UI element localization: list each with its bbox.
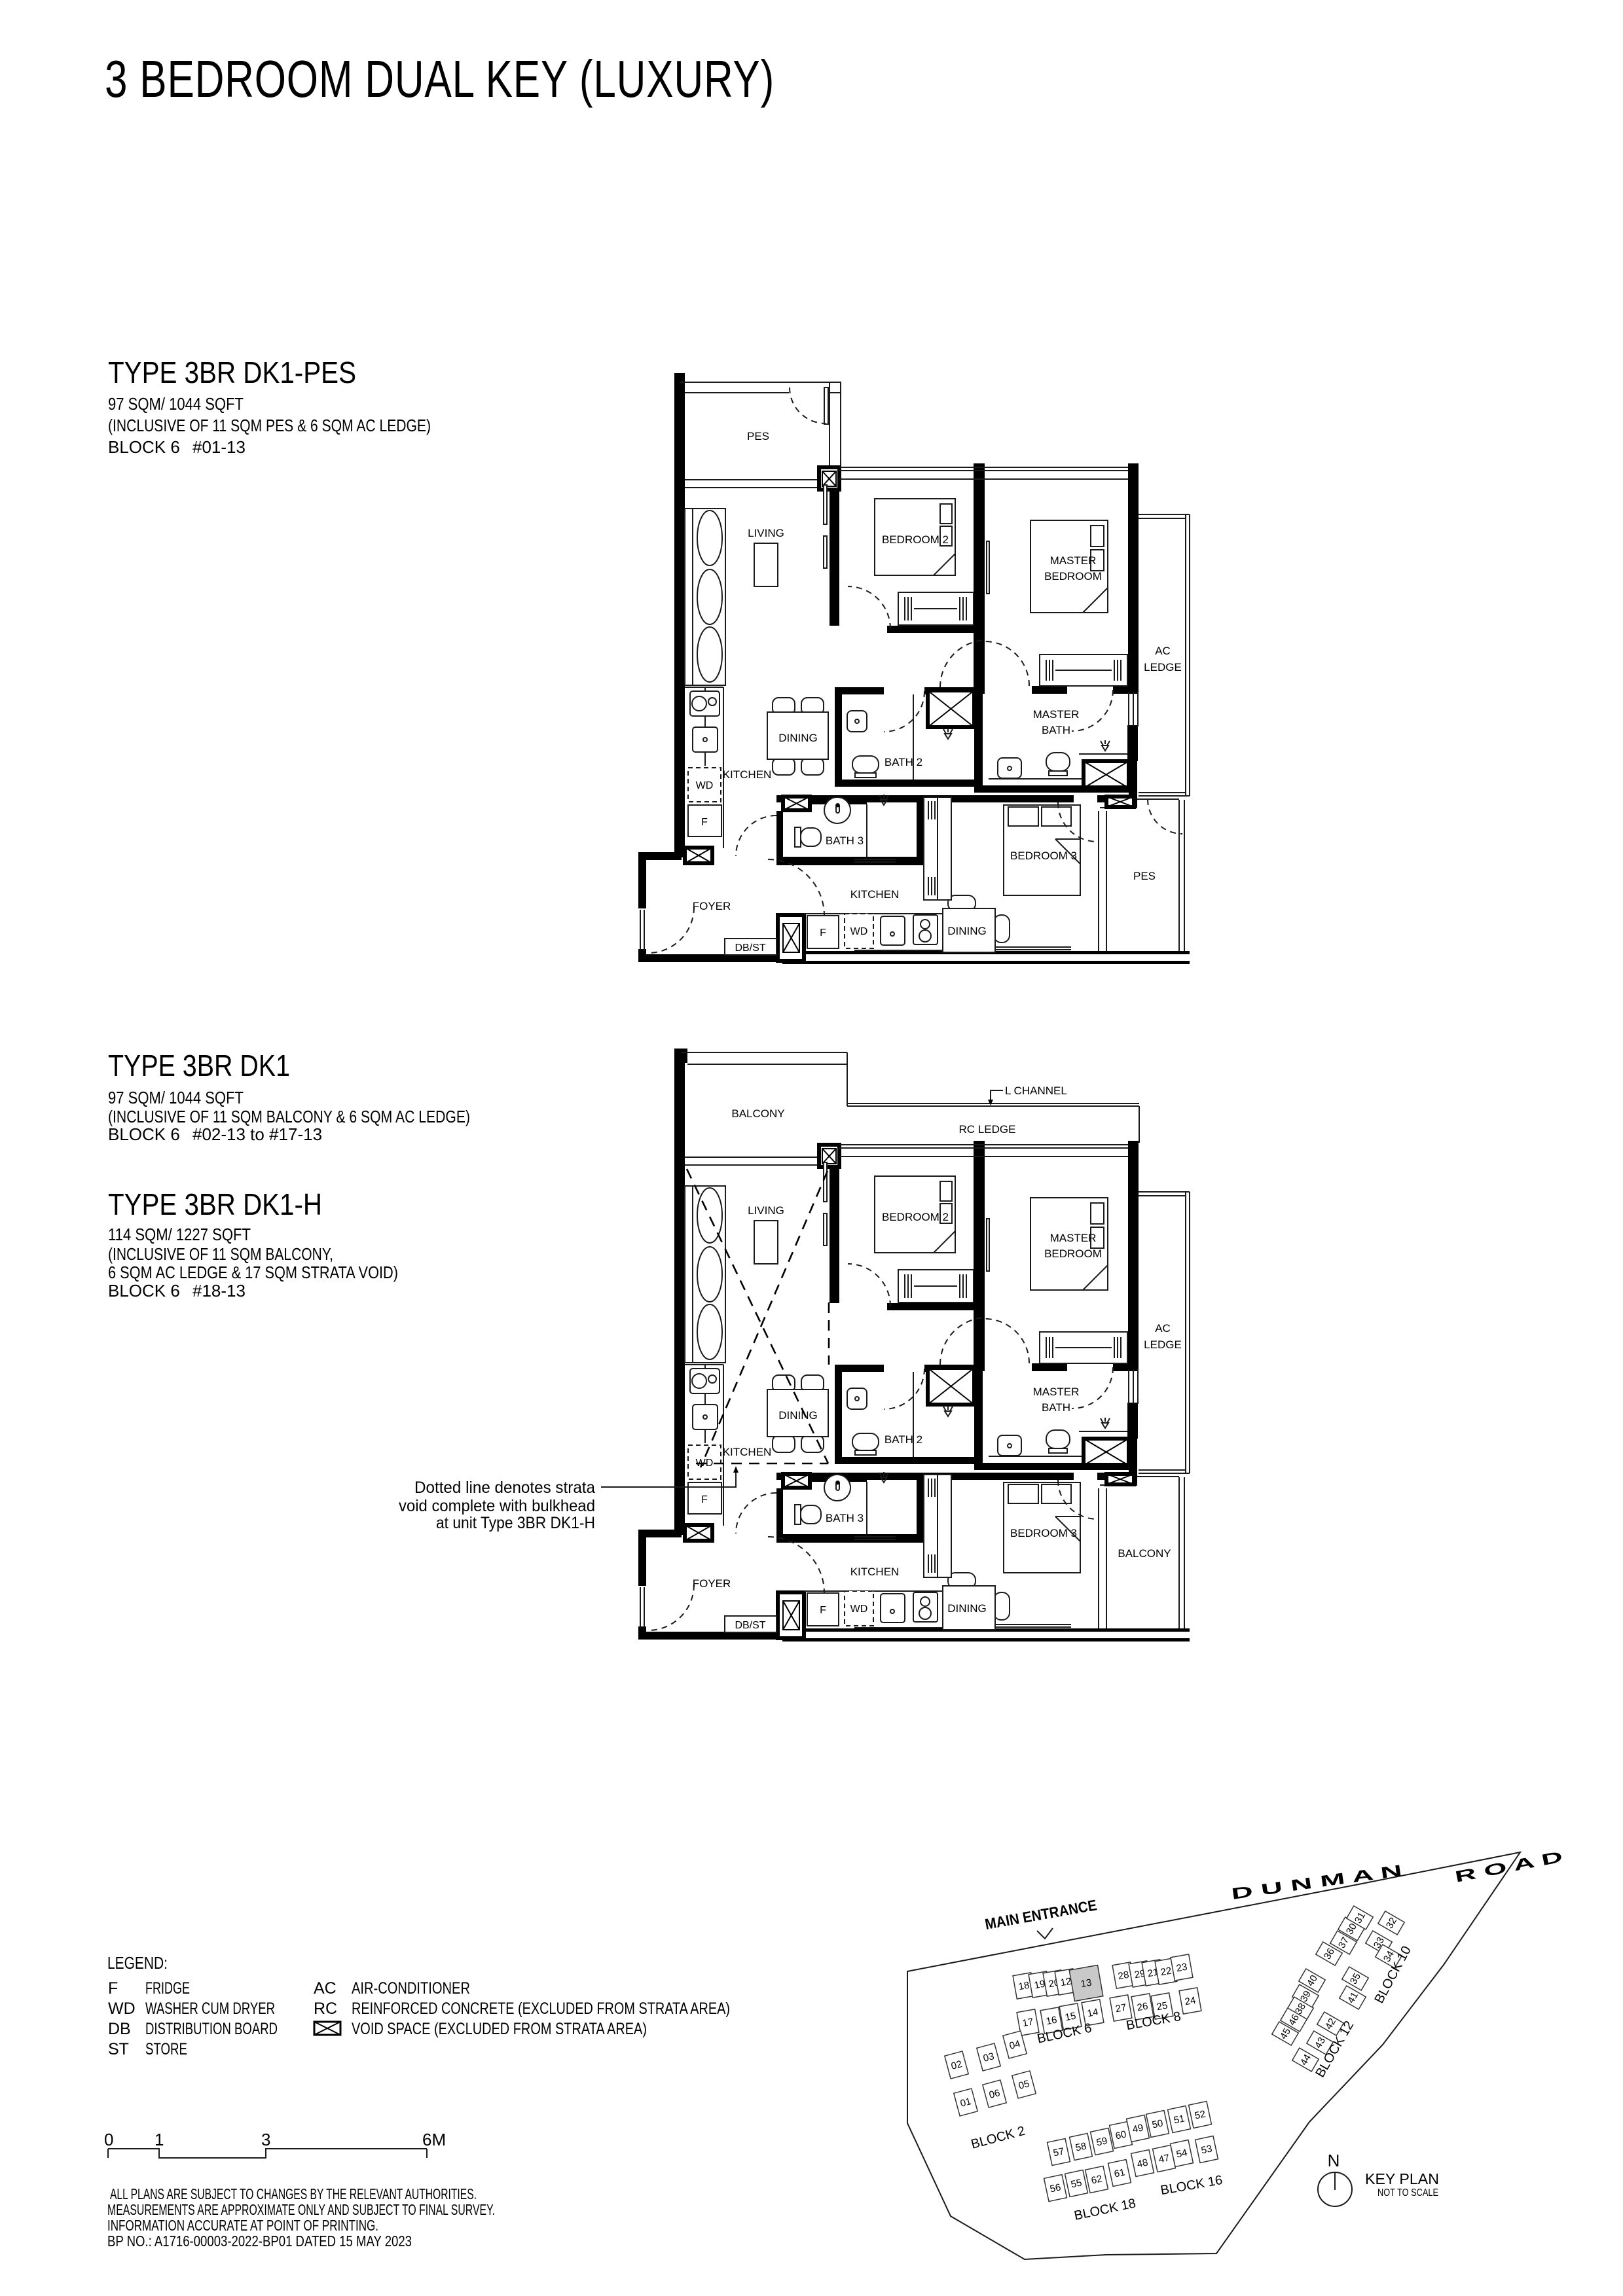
svg-text:DB: DB xyxy=(108,2020,131,2038)
svg-text:17: 17 xyxy=(1021,2017,1034,2030)
svg-text:TYPE 3BR DK1-PES: TYPE 3BR DK1-PES xyxy=(108,355,356,389)
svg-text:#18-13: #18-13 xyxy=(192,1281,246,1300)
svg-text:KEY PLAN: KEY PLAN xyxy=(1365,2170,1439,2187)
svg-text:REINFORCED CONCRETE (EXCLUDED: REINFORCED CONCRETE (EXCLUDED FROM STRAT… xyxy=(352,2000,730,2018)
svg-text:6M: 6M xyxy=(422,2130,446,2149)
svg-text:27: 27 xyxy=(1114,2002,1127,2015)
svg-text:TYPE 3BR DK1-H: TYPE 3BR DK1-H xyxy=(108,1187,322,1221)
svg-text:MAIN ENTRANCE: MAIN ENTRANCE xyxy=(983,1896,1098,1933)
svg-text:97 SQM/ 1044 SQFT: 97 SQM/ 1044 SQFT xyxy=(108,1088,244,1107)
svg-text:WD: WD xyxy=(108,2000,136,2018)
svg-text:BLOCK 18: BLOCK 18 xyxy=(1073,2196,1137,2223)
svg-text:RC LEDGE: RC LEDGE xyxy=(959,1123,1016,1136)
svg-text:48: 48 xyxy=(1136,2157,1149,2170)
svg-text:28: 28 xyxy=(1117,1969,1129,1982)
svg-text:13: 13 xyxy=(1080,1977,1092,1990)
svg-text:97 SQM/ 1044 SQFT: 97 SQM/ 1044 SQFT xyxy=(108,394,244,414)
svg-text:DISTRIBUTION BOARD: DISTRIBUTION BOARD xyxy=(145,2020,278,2038)
svg-text:NOT TO SCALE: NOT TO SCALE xyxy=(1377,2187,1438,2198)
svg-text:60: 60 xyxy=(1114,2128,1127,2142)
svg-text:ST: ST xyxy=(108,2040,129,2058)
svg-text:at unit Type 3BR DK1-H: at unit Type 3BR DK1-H xyxy=(436,1514,595,1532)
svg-text:26: 26 xyxy=(1136,2001,1148,2014)
svg-text:BLOCK 6: BLOCK 6 xyxy=(108,1281,180,1300)
svg-text:BALCONY: BALCONY xyxy=(1118,1547,1171,1560)
svg-text:3: 3 xyxy=(261,2130,270,2149)
svg-text:57: 57 xyxy=(1052,2145,1065,2159)
svg-text:TYPE 3BR DK1: TYPE 3BR DK1 xyxy=(108,1049,290,1083)
svg-text:#02-13 to #17-13: #02-13 to #17-13 xyxy=(192,1124,322,1144)
svg-text:R O A D: R O A D xyxy=(1453,1848,1564,1886)
svg-text:23: 23 xyxy=(1175,1962,1188,1975)
svg-text:6 SQM AC LEDGE & 17 SQM STRATA: 6 SQM AC LEDGE & 17 SQM STRATA VOID) xyxy=(108,1263,398,1282)
svg-text:52: 52 xyxy=(1194,2108,1207,2121)
svg-text:(INCLUSIVE OF 11 SQM BALCONY &: (INCLUSIVE OF 11 SQM BALCONY & 6 SQM AC … xyxy=(108,1107,470,1126)
svg-text:22: 22 xyxy=(1159,1965,1172,1979)
svg-text:VOID SPACE (EXCLUDED FROM STRA: VOID SPACE (EXCLUDED FROM STRATA AREA) xyxy=(352,2020,647,2038)
svg-text:25: 25 xyxy=(1156,2000,1168,2013)
svg-text:59: 59 xyxy=(1095,2135,1108,2148)
svg-text:#01-13: #01-13 xyxy=(192,437,246,457)
svg-text:STORE: STORE xyxy=(145,2040,187,2058)
svg-text:BALCONY: BALCONY xyxy=(731,1107,784,1120)
svg-text:53: 53 xyxy=(1200,2143,1213,2156)
svg-text:0: 0 xyxy=(104,2130,113,2149)
svg-text:47: 47 xyxy=(1158,2152,1171,2165)
svg-text:PES: PES xyxy=(747,430,769,442)
svg-text:49: 49 xyxy=(1131,2122,1144,2135)
svg-text:void complete with bulkhead: void complete with bulkhead xyxy=(399,1497,595,1515)
svg-text:54: 54 xyxy=(1175,2147,1188,2160)
svg-text:56: 56 xyxy=(1049,2181,1062,2195)
svg-text:WASHER CUM DRYER: WASHER CUM DRYER xyxy=(145,2000,275,2018)
svg-text:Dotted line denotes strata: Dotted line denotes strata xyxy=(414,1479,595,1497)
svg-text:FRIDGE: FRIDGE xyxy=(145,1979,190,1998)
svg-text:1: 1 xyxy=(155,2130,164,2149)
svg-text:14: 14 xyxy=(1086,2007,1099,2020)
svg-text:(INCLUSIVE OF 11 SQM BALCONY,: (INCLUSIVE OF 11 SQM BALCONY, xyxy=(108,1244,333,1264)
svg-text:INFORMATION ACCURATE AT POINT: INFORMATION ACCURATE AT POINT OF PRINTIN… xyxy=(107,2217,378,2234)
svg-text:(INCLUSIVE OF 11 SQM PES & 6 S: (INCLUSIVE OF 11 SQM PES & 6 SQM AC LEDG… xyxy=(108,416,431,435)
svg-text:BLOCK 2: BLOCK 2 xyxy=(970,2124,1027,2152)
svg-text:18: 18 xyxy=(1017,1980,1030,1993)
svg-text:15: 15 xyxy=(1064,2011,1076,2024)
svg-text:ALL PLANS ARE SUBJECT TO CHANG: ALL PLANS ARE SUBJECT TO CHANGES BY THE … xyxy=(110,2185,477,2202)
svg-text:55: 55 xyxy=(1070,2177,1083,2190)
svg-text:51: 51 xyxy=(1173,2113,1186,2126)
svg-text:L CHANNEL: L CHANNEL xyxy=(1005,1085,1067,1097)
svg-text:BLOCK 6: BLOCK 6 xyxy=(108,1124,180,1144)
svg-text:BLOCK 16: BLOCK 16 xyxy=(1159,2173,1224,2198)
svg-text:AIR-CONDITIONER: AIR-CONDITIONER xyxy=(352,1979,470,1998)
svg-text:RC: RC xyxy=(314,2000,337,2018)
svg-text:114 SQM/ 1227 SQFT: 114 SQM/ 1227 SQFT xyxy=(108,1225,251,1244)
svg-text:16: 16 xyxy=(1045,2015,1057,2028)
svg-text:BLOCK 6: BLOCK 6 xyxy=(108,437,180,457)
svg-text:58: 58 xyxy=(1074,2140,1087,2153)
svg-text:D U N M A N: D U N M A N xyxy=(1230,1862,1403,1903)
svg-text:AC: AC xyxy=(314,1979,337,1998)
svg-text:50: 50 xyxy=(1151,2117,1164,2130)
svg-text:62: 62 xyxy=(1090,2173,1103,2186)
svg-text:24: 24 xyxy=(1184,1995,1196,2008)
svg-text:61: 61 xyxy=(1113,2166,1126,2179)
svg-text:BP NO.: A1716-00003-2022-BP01: BP NO.: A1716-00003-2022-BP01 DATED 15 M… xyxy=(107,2233,412,2250)
svg-text:PES: PES xyxy=(1133,870,1156,882)
svg-text:N: N xyxy=(1328,2151,1340,2170)
svg-text:3 BEDROOM DUAL KEY (LUXURY): 3 BEDROOM DUAL KEY (LUXURY) xyxy=(105,50,775,108)
svg-text:F: F xyxy=(108,1979,118,1998)
svg-text:LEGEND:: LEGEND: xyxy=(107,1953,168,1973)
svg-text:MEASUREMENTS ARE APPROXIMATE O: MEASUREMENTS ARE APPROXIMATE ONLY AND SU… xyxy=(107,2201,495,2218)
